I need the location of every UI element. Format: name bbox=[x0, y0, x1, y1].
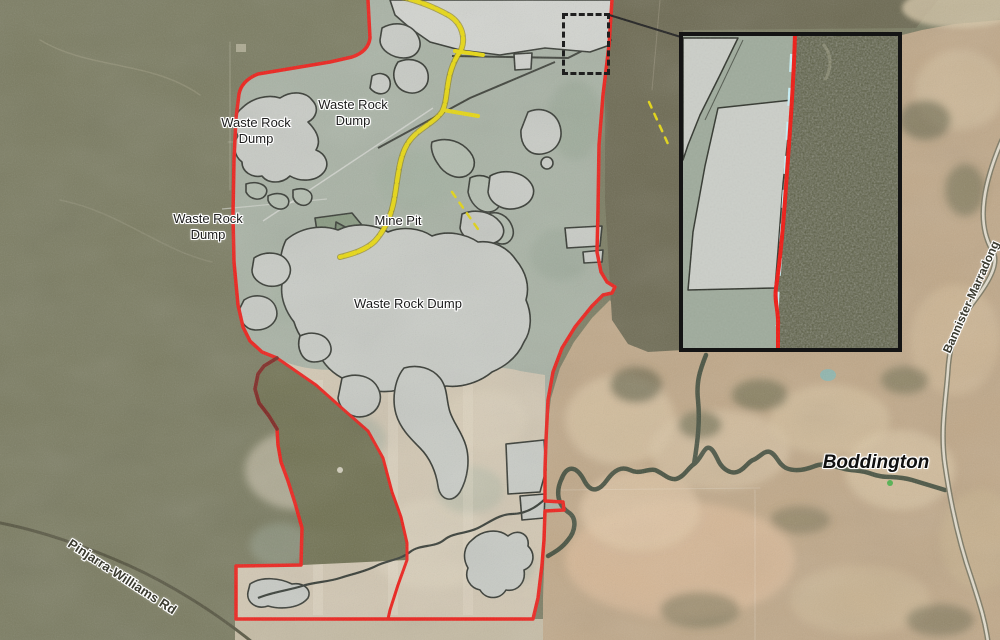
inset-extent-rectangle bbox=[562, 13, 610, 75]
label-line: Waste Rock bbox=[318, 97, 388, 112]
label-town-boddington: Boddington bbox=[823, 455, 930, 471]
inset-map bbox=[679, 32, 902, 352]
label-waste-rock-dump-central: Waste Rock Dump bbox=[354, 296, 462, 312]
label-waste-rock-dump-west-lower: Waste Rock Dump bbox=[173, 211, 243, 243]
label-line: Waste Rock bbox=[221, 115, 291, 130]
label-line: Dump bbox=[239, 131, 274, 146]
label-waste-rock-dump-top: Waste Rock Dump bbox=[318, 97, 388, 129]
label-mine-pit: Mine Pit bbox=[375, 213, 422, 229]
satellite-mine-map: Waste Rock Dump Waste Rock Dump Waste Ro… bbox=[0, 0, 1000, 640]
label-line: Waste Rock bbox=[173, 211, 243, 226]
label-waste-rock-dump-west-upper: Waste Rock Dump bbox=[221, 115, 291, 147]
label-line: Dump bbox=[336, 113, 371, 128]
label-line: Dump bbox=[191, 227, 226, 242]
